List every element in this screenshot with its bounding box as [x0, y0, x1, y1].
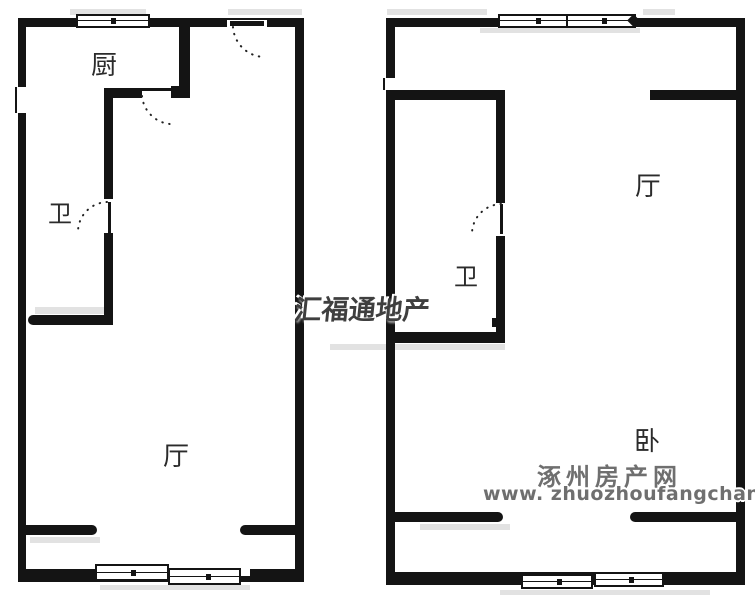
door-swing-arc [142, 96, 170, 124]
door-swing-arc [472, 204, 501, 233]
kitchen-label: 厨 [91, 53, 117, 79]
floorplan-canvas: 厨 卫 厅 [0, 0, 755, 600]
watermark-site-url: www. zhuozhoufangchan. com [483, 483, 755, 505]
door-swing-arc [78, 202, 107, 231]
living-label: 厅 [635, 174, 661, 200]
bath-label: 卫 [48, 202, 72, 226]
bed-label: 卧 [634, 429, 660, 455]
door-swing-arc [233, 27, 264, 57]
living-label: 厅 [163, 444, 189, 470]
watermark-agency: 汇福通地产 [293, 288, 432, 327]
bath-label: 卫 [454, 265, 478, 289]
